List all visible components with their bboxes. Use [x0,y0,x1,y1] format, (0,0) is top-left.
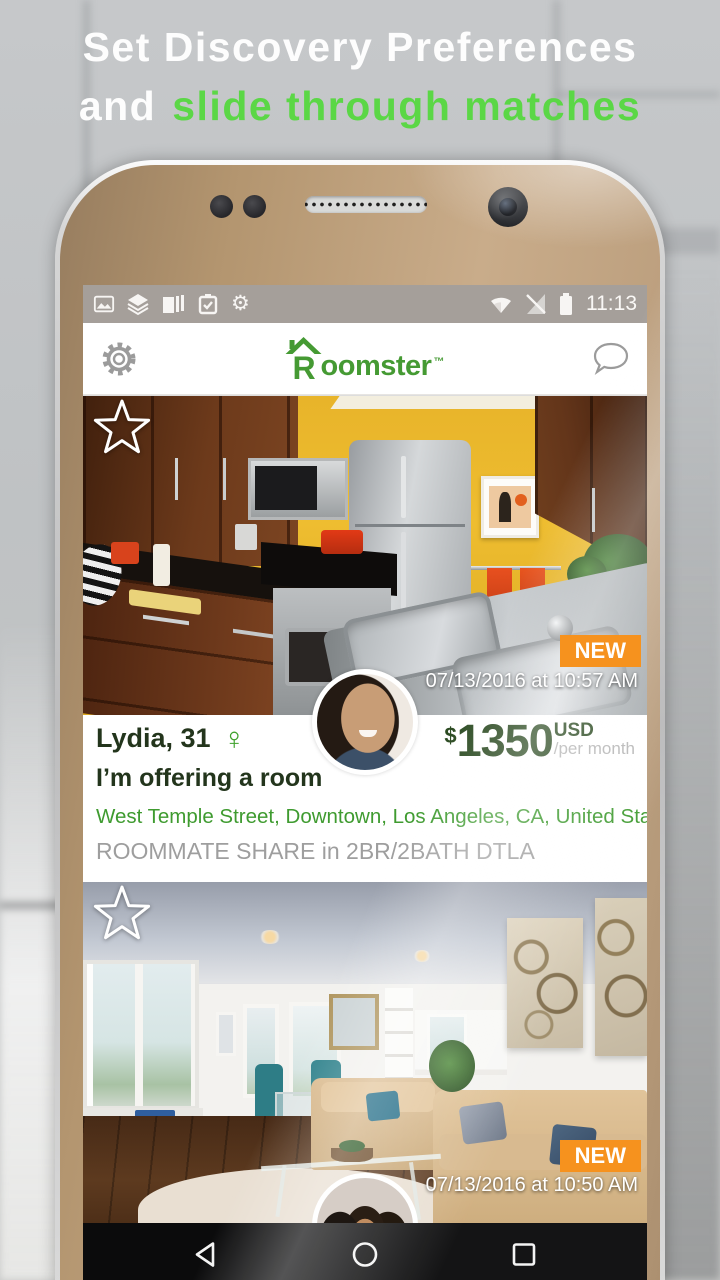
roomster-house-icon: R [286,337,322,381]
offer-type: I’m offering a room [96,764,322,793]
clock: 11:13 [586,292,637,316]
posted-date: 07/13/2016 at 10:50 AM [426,1174,638,1197]
earpiece-speaker [305,196,427,213]
android-nav-bar [83,1223,647,1280]
open-shelf [385,988,413,1080]
currency-code: USD [554,722,594,740]
settings-running-icon: ⚙ [231,293,250,315]
listing-card[interactable]: NEW 07/13/2016 at 10:50 AM [83,882,647,1223]
small-frame [216,1012,236,1056]
phone-bezel: ⚙ 11:13 R [60,165,660,1280]
currency-symbol: $ [444,723,456,749]
towel-rail [471,566,561,570]
red-decor [111,542,139,564]
price-unit: USD /per month [554,722,635,758]
price-amount: 1350 [457,720,553,762]
wifi-icon [489,293,513,315]
house-plant [429,1040,475,1092]
red-pot [321,530,363,554]
clipboard-check-icon [196,292,220,316]
layers-icon [126,292,150,316]
logo-wordmark: oomster [321,351,432,381]
new-badge: NEW [560,635,641,667]
refrigerator-door-split [355,524,465,527]
android-status-bar: ⚙ 11:13 [83,285,647,323]
posted-date: 07/13/2016 at 10:57 AM [426,670,638,693]
headline-line2-green: slide through matches [172,83,641,129]
status-system-icons: 11:13 [489,292,637,316]
per-month-label: /per month [554,740,635,758]
app-screen: ⚙ 11:13 R [83,285,647,1280]
nav-home-button[interactable] [351,1240,379,1273]
listing-card[interactable]: NEW 07/13/2016 at 10:57 AM Lydia, 31 ♀ $… [83,395,647,882]
messages-button[interactable] [593,342,629,376]
listing-info: Lydia, 31 ♀ $ 1350 USD /per month I’m of… [83,715,647,882]
centerpiece-greens [339,1140,365,1152]
headline-line2-white: and [79,83,156,129]
gray-pillow [459,1101,508,1145]
price-block: $ 1350 USD /per month [444,720,635,762]
recessed-light [413,950,431,962]
listing-photo-kitchen[interactable]: NEW 07/13/2016 at 10:57 AM [83,395,647,715]
marketing-headline: Set Discovery Preferences andslide throu… [0,24,720,130]
favorite-star-button[interactable] [91,884,153,947]
refrigerator-handle [401,456,406,518]
favorite-star-button[interactable] [91,398,153,461]
refrigerator-handle [401,532,406,612]
utensil-cup [235,524,257,550]
profile-avatar[interactable] [312,669,418,775]
headline-line1: Set Discovery Preferences [0,24,720,71]
gallery-icon [93,293,115,315]
member-name-age: Lydia, 31 [96,723,211,754]
nav-back-button[interactable] [193,1240,219,1273]
logo-letter-r: R [293,353,316,383]
listing-location: West Temple Street, Downtown, Los Angele… [96,805,647,829]
art-figure [499,492,511,522]
new-badge: NEW [560,1140,641,1172]
headline-line2: andslide through matches [0,83,720,130]
wall-canvas [595,898,647,1056]
cabinet-handle [223,458,226,500]
art-circle [515,494,527,506]
recessed-light [259,930,281,944]
female-gender-icon: ♀ [223,725,246,753]
microwave-window [255,466,317,510]
light-sensor [243,195,266,218]
proximity-sensor [210,195,233,218]
status-notification-icons: ⚙ [93,292,250,316]
kitchen-ceiling [330,396,549,409]
roomster-logo: R oomster ™ [286,337,445,381]
front-camera [488,187,528,227]
no-signal-icon [524,293,548,315]
teal-pillow [366,1090,401,1121]
cabinet-handle [592,488,595,532]
listing-title: ROOMMATE SHARE in 2BR/2BATH DTLA [96,838,535,865]
copies-icon [161,292,185,316]
logo-trademark: ™ [433,356,444,368]
cabinet-handle [175,458,178,500]
gold-mirror [329,994,379,1050]
wall-canvas [507,918,583,1048]
settings-gear-button[interactable] [101,341,137,377]
nav-recents-button[interactable] [511,1241,537,1272]
name-row: Lydia, 31 ♀ [96,723,246,754]
large-window [83,960,199,1110]
white-vase [153,544,170,586]
app-store-screenshot: Set Discovery Preferences andslide throu… [0,0,720,1280]
battery-icon [559,293,573,316]
phone-mockup: ⚙ 11:13 R [55,160,665,1280]
listing-photo-living-room[interactable]: NEW 07/13/2016 at 10:50 AM [83,882,647,1223]
app-header: R oomster ™ [83,323,647,395]
